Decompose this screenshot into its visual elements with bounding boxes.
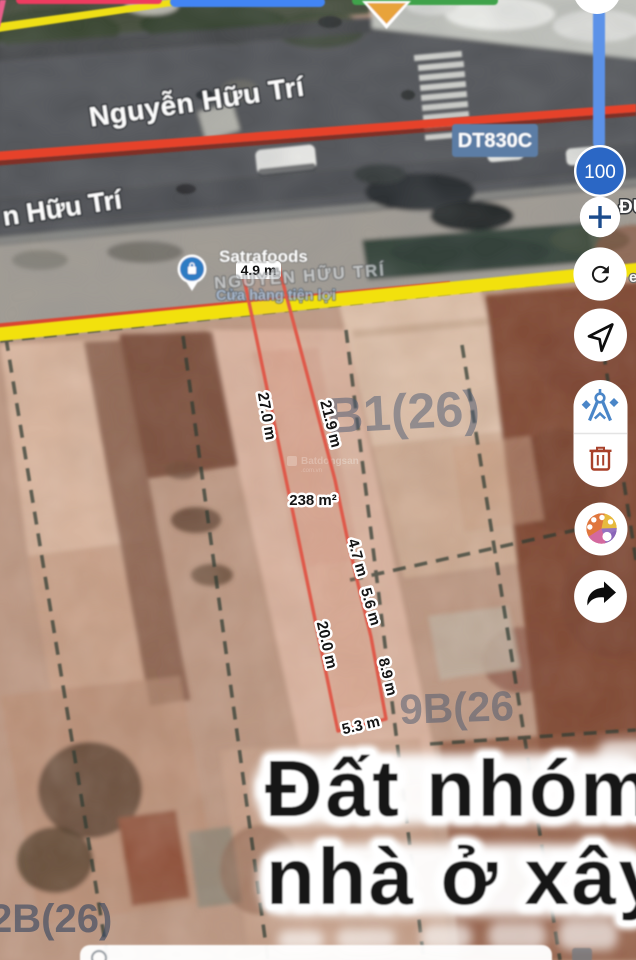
svg-text:DT830C: DT830C bbox=[458, 130, 532, 152]
svg-text:er: er bbox=[629, 269, 636, 286]
svg-text:9B(26: 9B(26 bbox=[399, 682, 515, 733]
svg-text:Satrafoods: Satrafoods bbox=[219, 247, 308, 266]
svg-text:ĐU: ĐU bbox=[619, 197, 636, 218]
svg-text:238 m²: 238 m² bbox=[289, 492, 337, 509]
svg-text:2B(26): 2B(26) bbox=[0, 897, 112, 941]
svg-text:B1(26): B1(26) bbox=[326, 380, 482, 444]
svg-text:100: 100 bbox=[584, 162, 616, 183]
svg-text:Cửa hàng tiện lợi: Cửa hàng tiện lợi bbox=[216, 288, 336, 304]
svg-text:nhà ở xây: nhà ở xây bbox=[266, 832, 636, 921]
svg-text:Đất nhóm: Đất nhóm bbox=[265, 744, 636, 833]
